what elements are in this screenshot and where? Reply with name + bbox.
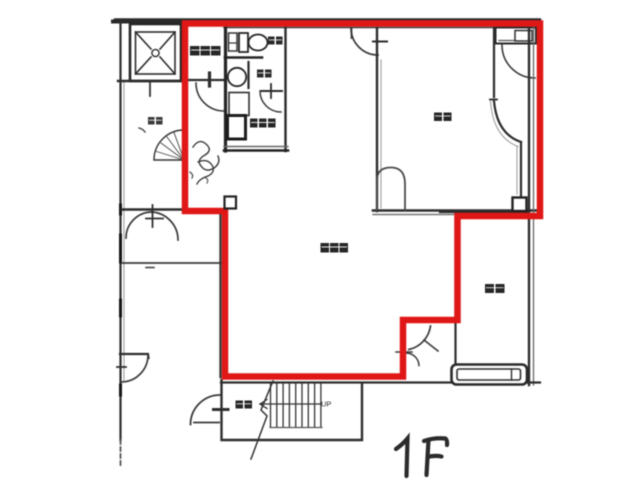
svg-text:UP: UP: [321, 400, 331, 409]
